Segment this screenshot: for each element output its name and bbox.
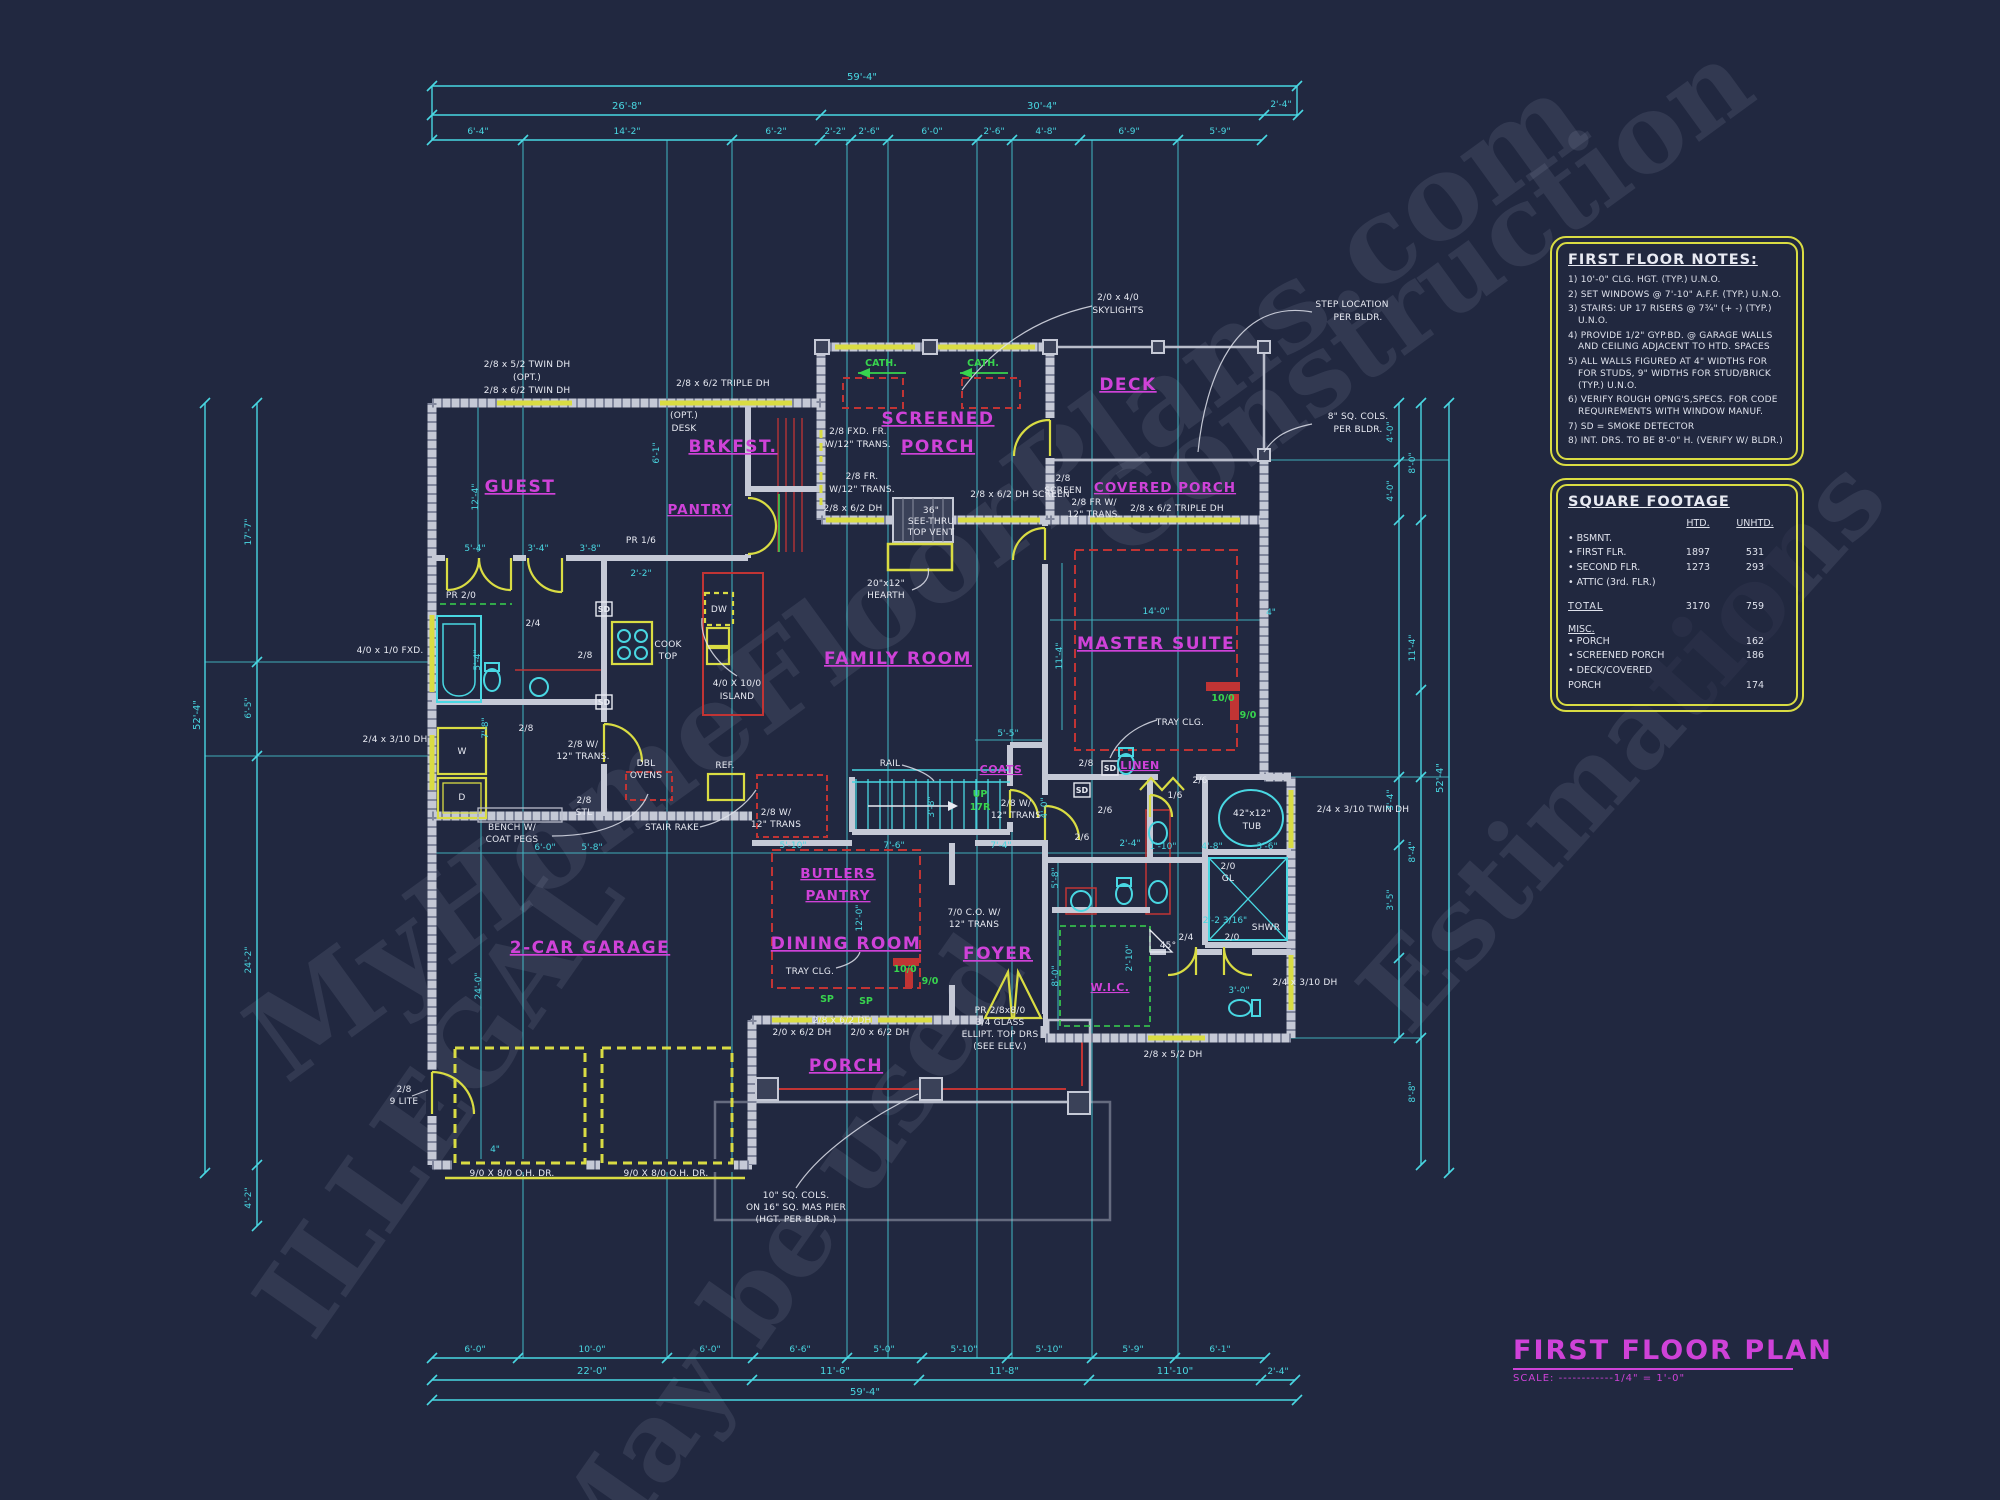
sd-kitchen-2: SD [598, 698, 611, 707]
fixture-dw: DW [711, 605, 727, 615]
room-master-suite: MASTER SUITE [1077, 634, 1235, 654]
note-stair-rake: STAIR RAKE [645, 823, 699, 833]
fixture-shwr: SHWR [1252, 923, 1280, 933]
dim-g-3-4: 3'-4" [527, 544, 548, 554]
room-butlers-pantry-1: BUTLERS [800, 866, 875, 882]
room-porch: PORCH [809, 1056, 883, 1076]
dim-shwr-2-2: 2'-2 3/16" [1203, 916, 1247, 926]
note-island-1: 4/0 X 10/0 [713, 679, 762, 689]
door-kitchen-trans-1: 2/8 W/ [568, 740, 599, 750]
note-bench-2: COAT PEGS [486, 835, 539, 845]
label-up: UP [973, 789, 988, 800]
room-linen: LINEN [1120, 759, 1160, 772]
dim-r-52-4: 52'-4" [1435, 763, 1446, 793]
sd-hall-1: SD [1104, 764, 1117, 773]
win-porch-fxd-2: W/12" TRANS. [825, 440, 891, 450]
dim-wic-2-10: 2'-10" [1125, 944, 1135, 971]
door-front-4: (SEE ELEV.) [973, 1042, 1026, 1052]
door-hall: 2/8 [518, 724, 533, 734]
note-vent-3: TOP VENT [907, 528, 955, 538]
door-garage-2: 9/0 X 8/0 O.H. DR. [624, 1169, 709, 1179]
dim-t-2-2: 2'-2" [824, 127, 845, 137]
dim-garage-4in: 4" [490, 1145, 500, 1155]
dim-b-2-4: 2'-4" [1267, 1367, 1288, 1377]
dim-r-3-4: 3'-4" [1386, 789, 1396, 810]
door-cooktop-side: 2/8 [577, 651, 592, 661]
note-porch-cols-2: ON 16" SQ. MAS PIER [746, 1203, 846, 1213]
dim-l-17-7: 17'-7" [244, 518, 254, 545]
dim-b-6-0a: 6'-0" [464, 1345, 485, 1355]
dim-l-24-2: 24'-2" [244, 946, 254, 973]
dim-stair-3-8: 3'-8" [927, 796, 937, 817]
room-garage: 2-CAR GARAGE [510, 938, 670, 958]
dim-r-4-0b: 4'-0" [1386, 480, 1396, 501]
room-coats: COATS [980, 763, 1023, 776]
dim-dining-12-0: 12'-0" [855, 904, 865, 931]
fixture-ref: REF. [715, 761, 734, 771]
win-guest-twin-1: 2/8 x 5/2 TWIN DH [484, 360, 571, 370]
note-tray-master: TRAY CLG. [1155, 718, 1204, 728]
note-item: 1) 10'-0" CLG. HGT. (TYP.) U.N.O. [1568, 275, 1786, 287]
room-screened-porch-2: PORCH [901, 437, 975, 457]
sqft-total-unhtd: 759 [1724, 601, 1786, 612]
door-front-1: PR 2/8x8/0 [975, 1006, 1026, 1016]
note-item: 3) STAIRS: UP 17 RISERS @ 7¾" (+ -) (TYP… [1568, 304, 1786, 327]
room-foyer: FOYER [963, 944, 1033, 964]
dim-b-5-0: 5'-0" [873, 1345, 894, 1355]
label-master-10-0: 10/0 [1211, 693, 1235, 704]
sqft-header: HTD. UNHTD. [1568, 517, 1786, 532]
floor-plan-drawing: ILLEGALMyHomeFloorPlans.comMay be usedCo… [0, 0, 2000, 1500]
dim-pantry-2-2: 2'-2" [630, 569, 651, 579]
label-sp-2: SP [859, 996, 873, 1007]
sqft-row: • FIRST FLR.1897531 [1568, 546, 1786, 561]
dim-b-5-9: 5'-9" [1122, 1345, 1143, 1355]
dim-t-6-9: 6'-9" [1118, 127, 1139, 137]
dim-hall-7-8: 7'-8" [481, 717, 491, 738]
sd-kitchen-1: SD [598, 605, 611, 614]
dim-coats-5-5: 5'-5" [997, 729, 1018, 739]
door-front-2: 3/4 GLASS [976, 1018, 1025, 1028]
opt-desk-2: DESK [671, 424, 697, 434]
fixture-cooktop-1: COOK [654, 640, 682, 650]
scale-value: ------------1/4" = 1'-0" [1559, 1373, 1685, 1384]
note-foyer-co-2: 12" TRANS [949, 920, 999, 930]
dim-t-6-0: 6'-0" [921, 127, 942, 137]
room-butlers-pantry-2: PANTRY [805, 888, 870, 904]
door-stair-trans-2: 12" TRANS [991, 811, 1041, 821]
fixture-dbl-ovens-2: OVENS [630, 771, 662, 781]
room-wic: W.I.C. [1091, 981, 1130, 994]
dim-b-5-10b: 5'-10" [1035, 1345, 1062, 1355]
door-wc: 2/6 [1097, 806, 1112, 816]
sqft-misc-title: MISC. [1568, 624, 1786, 635]
dim-b-22-0: 22'-0" [577, 1366, 607, 1377]
dim-t-6-2: 6'-2" [765, 127, 786, 137]
square-footage-panel: SQUARE FOOTAGE HTD. UNHTD. • BSMNT.• FIR… [1550, 478, 1804, 712]
title-block: FIRST FLOOR PLAN SCALE: ------------1/4"… [1513, 1335, 1793, 1384]
dim-bath-5-8: 5'-8" [1051, 867, 1061, 888]
dim-t-6-4: 6'-4" [467, 127, 488, 137]
door-wic: 2/4 [1178, 933, 1193, 943]
win-dining-2: 2/0 x 6/2 DH [773, 1028, 832, 1038]
door-garage-1: 9/0 X 8/0 O.H. DR. [470, 1169, 555, 1179]
sheet-scale: SCALE: ------------1/4" = 1'-0" [1513, 1373, 1793, 1384]
sqft-row: • BSMNT. [1568, 532, 1786, 547]
sqft-total-row: TOTAL 3170 759 [1568, 601, 1786, 612]
door-guest-closet: PR 2/0 [446, 591, 476, 601]
dim-b-10-0: 10'-0" [578, 1345, 605, 1355]
sqft-row: • PORCH162 [1568, 635, 1786, 650]
note-45deg: 45° [1160, 941, 1177, 951]
sqft-row: • DECK/COVERED PORCH174 [1568, 664, 1786, 693]
door-garage-side-2: 9 LITE [390, 1097, 419, 1107]
note-step-location-2: PER BLDR. [1334, 313, 1383, 323]
win-porch-fr-2: W/12" TRANS. [829, 485, 895, 495]
opt-desk-1: (OPT.) [670, 411, 698, 421]
sqft-row: • SECOND FLR.1273293 [1568, 561, 1786, 576]
dim-mb-1-10: 1'-10" [1149, 842, 1176, 852]
note-tray-dining: TRAY CLG. [785, 967, 834, 977]
dim-r-8-0: 8'-0" [1408, 452, 1418, 473]
dim-master-4in: 4" [1266, 608, 1276, 618]
door-screen-2: SCREEN [1044, 486, 1082, 496]
sqft-col-htd: HTD. [1672, 517, 1724, 532]
door-master-28: 2/8 [1078, 759, 1093, 769]
dim-wic-8-0: 8'-0" [1051, 965, 1061, 986]
dim-overall-bottom: 59'-4" [850, 1387, 880, 1398]
dim-bench-5-8: 5'-8" [581, 843, 602, 853]
label-17r: 17R [970, 802, 991, 813]
win-family-dh: 2/8 x 6/2 DH [824, 504, 883, 514]
dim-b-6-1: 6'-1" [1209, 1345, 1230, 1355]
floor-plan-sheet: ILLEGALMyHomeFloorPlans.comMay be usedCo… [0, 0, 2000, 1500]
fixture-washer: W [457, 747, 466, 757]
win-guest-twin-3: 2/8 x 6/2 TWIN DH [484, 386, 571, 396]
note-cols-8sq-2: PER BLDR. [1334, 425, 1383, 435]
note-foyer-co-1: 7/0 C.O. W/ [947, 908, 1001, 918]
room-pantry: PANTRY [667, 502, 732, 518]
label-sp-1: SP [820, 994, 834, 1005]
win-wic-dh: 2/8 x 5/2 DH [1144, 1050, 1203, 1060]
door-stair-trans-1: 2/8 W/ [1001, 799, 1032, 809]
label-master-9-0: 9/0 [1240, 710, 1257, 721]
note-item: 4) PROVIDE 1/2" GYP.BD. @ GARAGE WALLS A… [1568, 331, 1786, 354]
dim-l-4-2: 4'-2" [244, 1187, 254, 1208]
dim-mb-3-6: 3'-6" [1256, 842, 1277, 852]
dim-top-30-4: 30'-4" [1027, 101, 1057, 112]
room-guest: GUEST [485, 477, 556, 497]
win-master-triple: 2/8 x 6/2 TRIPLE DH [1130, 504, 1224, 514]
sqft-col-unhtd: UNHTD. [1724, 517, 1786, 532]
dim-dining-5-10: 5'-10" [779, 841, 806, 851]
win-dining-1: 2/8 x 6/2 DH [813, 1016, 872, 1026]
note-skylights-1: 2/0 x 4/0 [1097, 293, 1139, 303]
note-vent-1: 36" [923, 506, 939, 516]
note-step-location-1: STEP LOCATION [1315, 300, 1388, 310]
dim-master-11-4: 11'-4" [1055, 642, 1065, 669]
dim-top-26-8: 26'-8" [612, 101, 642, 112]
dim-bath-5-4: 5'-4" [473, 649, 483, 670]
first-floor-notes-panel: FIRST FLOOR NOTES: 1) 10'-0" CLG. HGT. (… [1550, 236, 1804, 466]
note-bench-1: BENCH W/ [488, 823, 537, 833]
door-stl-2: STL [576, 808, 593, 818]
fixture-dbl-ovens-1: DBL [637, 759, 656, 769]
note-vent-2: SEE-THRU [908, 517, 954, 527]
notes-title: FIRST FLOOR NOTES: [1568, 252, 1786, 268]
win-left-fxd: 4/0 x 1/0 FXD. [357, 646, 424, 656]
room-dining-room: DINING ROOM [771, 934, 922, 954]
note-rail: RAIL [880, 759, 901, 769]
note-item: 5) ALL WALLS FIGURED AT 4" WIDTHS FOR FO… [1568, 357, 1786, 392]
door-garage-side-1: 2/8 [396, 1085, 411, 1095]
dim-l-6-5: 6'-5" [244, 697, 254, 718]
dim-b-11-8: 11'-8" [989, 1366, 1019, 1377]
notes-list: 1) 10'-0" CLG. HGT. (TYP.) U.N.O.2) SET … [1568, 275, 1786, 448]
door-butler-trans-2: 12" TRANS [751, 820, 801, 830]
win-brkfst-triple: 2/8 x 6/2 TRIPLE DH [676, 379, 770, 389]
dim-t-2-6a: 2'-6" [858, 127, 879, 137]
label-dining-9-0: 9/0 [922, 976, 939, 987]
dim-r-11-4: 11'-4" [1408, 634, 1418, 661]
dim-t-2-6b: 2'-6" [983, 127, 1004, 137]
win-porch-fr-right-2: 12" TRANS. [1067, 510, 1120, 520]
note-item: 2) SET WINDOWS @ 7'-10" A.F.F. (TYP.) U.… [1568, 290, 1786, 302]
sd-hall-2: SD [1076, 786, 1089, 795]
sqft-row: • SCREENED PORCH186 [1568, 649, 1786, 664]
door-bath-26: 2/6 [1192, 776, 1207, 786]
dim-pantry-6-1: 6'-1" [652, 442, 662, 463]
note-porch-cols-1: 10" SQ. COLS. [763, 1191, 830, 1201]
win-mbath-dh: 2/4 x 3/10 DH [1273, 978, 1338, 988]
note-item: 7) SD = SMOKE DETECTOR [1568, 422, 1786, 434]
note-cols-8sq-1: 8" SQ. COLS. [1328, 412, 1389, 422]
dim-r-4-0a: 4'-0" [1386, 421, 1396, 442]
door-shower-2: GL [1222, 874, 1234, 884]
dim-guest-12-4: 12'-4" [471, 483, 481, 510]
door-wc-16: 1/6 [1167, 791, 1182, 801]
sqft-rows: • BSMNT.• FIRST FLR.1897531• SECOND FLR.… [1568, 532, 1786, 591]
label-cath-2: CATH. [967, 358, 999, 369]
scale-label: SCALE: [1513, 1373, 1554, 1384]
door-butler-trans-1: 2/8 W/ [761, 808, 792, 818]
dim-r-8-4: 8'-4" [1408, 841, 1418, 862]
door-shower-1: 2/0 [1220, 862, 1235, 872]
door-guest-bath: 2/4 [525, 619, 540, 629]
dim-l-52-4: 52'-4" [192, 700, 203, 730]
door-screen-1: 2/8 [1055, 474, 1070, 484]
door-kitchen-trans-2: 12" TRANS. [556, 752, 609, 762]
dim-b-6-0b: 6'-0" [699, 1345, 720, 1355]
door-mbath: 2/0 [1224, 933, 1239, 943]
win-porch-fr-1: 2/8 FR. [846, 472, 879, 482]
fixture-tub-2: TUB [1242, 822, 1262, 832]
win-porch-fr-right-1: 2/8 FR W/ [1071, 498, 1117, 508]
sqft-misc-rows: • PORCH162• SCREENED PORCH186• DECK/COVE… [1568, 635, 1786, 694]
sheet-title: FIRST FLOOR PLAN [1513, 1335, 1793, 1370]
win-porch-fxd-1: 2/8 FXD. FR. [829, 427, 887, 437]
sqft-total-htd: 3170 [1672, 601, 1724, 612]
fixture-dryer: D [458, 793, 465, 803]
label-cath-1: CATH. [865, 358, 897, 369]
fixture-cooktop-2: TOP [658, 652, 678, 662]
note-item: 6) VERIFY ROUGH OPNG'S,SPECS. FOR CODE R… [1568, 395, 1786, 418]
dim-r-3-5: 3'-5" [1386, 889, 1396, 910]
dim-mb-2-4: 2'-4" [1119, 839, 1140, 849]
sqft-title: SQUARE FOOTAGE [1568, 494, 1786, 510]
room-covered-porch: COVERED PORCH [1094, 480, 1236, 496]
dim-dining-7-6: 7'-6" [883, 841, 904, 851]
dim-hall-4-0: 4'-0" [1040, 797, 1050, 818]
dim-r-8-8: 8'-8" [1408, 1081, 1418, 1102]
door-pantry: PR 1/6 [626, 536, 656, 546]
dim-b-6-6: 6'-6" [789, 1345, 810, 1355]
dim-b-5-10a: 5'-10" [950, 1345, 977, 1355]
dim-g-5-4: 5'-4" [464, 544, 485, 554]
dim-t-14-2: 14'-2" [613, 127, 640, 137]
win-left-dh: 2/4 x 3/10 DH [363, 735, 428, 745]
dim-mb-4-8: 4'-8" [1201, 842, 1222, 852]
note-porch-cols-3: (HGT. PER BLDR.) [756, 1215, 837, 1225]
dim-master-14-0: 14'-0" [1142, 607, 1169, 617]
label-dining-10-0: 10/0 [893, 964, 917, 975]
door-stl-1: 2/8 [576, 796, 591, 806]
dim-b-11-10: 11'-10" [1157, 1366, 1193, 1377]
note-island-2: ISLAND [720, 692, 755, 702]
door-front-3: ELLIPT. TOP DRS [962, 1030, 1039, 1040]
sqft-total-label: TOTAL [1568, 601, 1672, 612]
note-skylights-2: SKYLIGHTS [1092, 306, 1143, 316]
note-hearth-1: 20"x12" [867, 579, 905, 589]
win-dining-3: 2/0 x 6/2 DH [851, 1028, 910, 1038]
dim-mb-3-0: 3'-0" [1228, 986, 1249, 996]
win-guest-twin-2: (OPT.) [513, 373, 541, 383]
dim-garage-24-0: 24'-0" [474, 972, 484, 999]
room-brkfst: BRKFST. [688, 437, 777, 457]
dim-g-3-8: 3'-8" [579, 544, 600, 554]
room-screened-porch-1: SCREENED [882, 409, 995, 429]
dim-top-2-4: 2'-4" [1270, 100, 1291, 110]
sqft-row: • ATTIC (3rd. FLR.) [1568, 576, 1786, 591]
room-family-room: FAMILY ROOM [824, 649, 972, 669]
fixture-tub-1: 42"x12" [1233, 809, 1271, 819]
dim-t-4-8: 4'-8" [1035, 127, 1056, 137]
dim-foyer-7-4: 7'-4" [990, 841, 1011, 851]
note-item: 8) INT. DRS. TO BE 8'-0" H. (VERIFY W/ B… [1568, 436, 1786, 448]
door-hall-26: 2/6 [1074, 833, 1089, 843]
dim-bench-6-0: 6'-0" [534, 843, 555, 853]
dim-overall-top: 59'-4" [847, 72, 877, 83]
note-hearth-2: HEARTH [867, 591, 905, 601]
dim-t-5-9: 5'-9" [1209, 127, 1230, 137]
dim-b-11-6: 11'-6" [820, 1366, 850, 1377]
room-deck: DECK [1099, 375, 1156, 395]
